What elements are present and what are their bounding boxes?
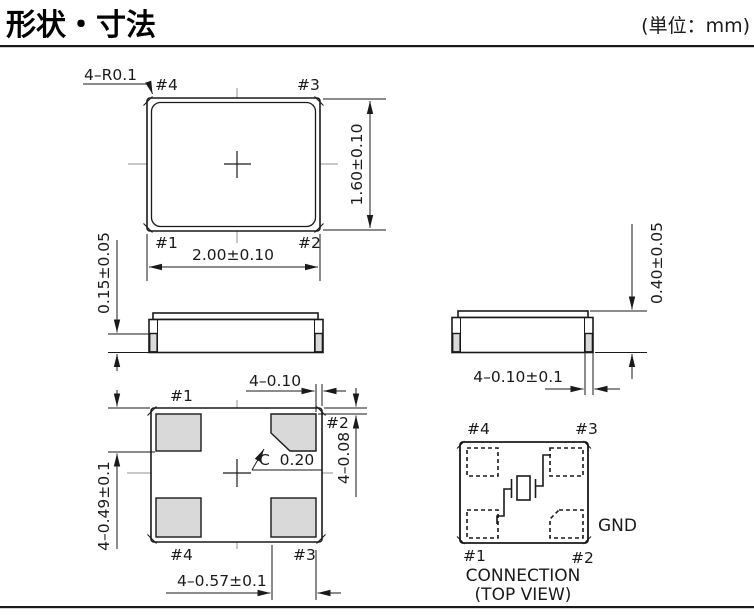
chamfer-label: C 0.20 — [259, 451, 314, 469]
body-height-dimension: 0.40±0.05 — [590, 222, 666, 379]
height-dim-label: 1.60±0.10 — [348, 123, 366, 205]
terminal-width-dimension: 4–0.10±0.1 — [473, 353, 620, 395]
pad-1 — [156, 414, 201, 451]
caption-connection: CONNECTION — [466, 566, 581, 586]
top-view: #4 #3 #1 #2 4–R0.1 1.60±0.10 2.00±0.10 — [83, 66, 386, 281]
terminal-height-label: 0.15±0.05 — [95, 232, 113, 314]
package-outline — [460, 442, 588, 543]
caption-top-view: (TOP VIEW) — [475, 585, 572, 605]
terminal-right — [585, 334, 592, 352]
pin4-label: #4 — [155, 76, 178, 94]
pad-height-dimension: 4–0.49±0.1 — [95, 390, 155, 551]
pin1-label: #1 — [155, 234, 178, 252]
body — [452, 318, 593, 353]
body — [149, 320, 323, 353]
pad-edge-gap-y-dimension: 4–0.08 — [318, 388, 367, 497]
pin3-label: #3 — [575, 420, 598, 438]
chamfer-callout: C 0.20 — [252, 449, 322, 470]
unit-note: (単位：mm) — [641, 15, 750, 37]
pin2-label: #2 — [298, 234, 321, 252]
lid — [458, 311, 588, 318]
corner-radius-callout: 4–R0.1 — [83, 66, 153, 94]
terminal-width-label: 4–0.10±0.1 — [473, 368, 563, 386]
lid — [153, 313, 318, 320]
header: 形状・寸法 (単位：mm) — [0, 8, 754, 47]
pin4-label: #4 — [170, 546, 193, 564]
pin4-label: #4 — [467, 420, 490, 438]
pad-width-label: 4–0.57±0.1 — [177, 572, 267, 590]
corner-radius-label: 4–R0.1 — [84, 66, 137, 84]
pad-edge-gap-y-label: 4–0.08 — [335, 432, 353, 484]
pad-3 — [271, 498, 316, 537]
side-view-end: 0.40±0.05 4–0.10±0.1 — [452, 222, 666, 395]
pin2-label: #2 — [326, 414, 349, 432]
terminal-left — [453, 334, 460, 352]
pin1-label: #1 — [463, 547, 486, 565]
terminal-right — [315, 334, 322, 352]
pin3-label: #3 — [297, 76, 320, 94]
pin1-label: #1 — [170, 387, 193, 405]
body-height-label: 0.40±0.05 — [648, 222, 666, 304]
footer-rule — [0, 606, 754, 608]
pad-4 — [156, 498, 201, 537]
pad-edge-gap-x-label: 4–0.10 — [249, 372, 301, 390]
page-title: 形状・寸法 — [6, 8, 156, 43]
terminal-left — [150, 334, 157, 352]
pad-height-label: 4–0.49±0.1 — [95, 461, 113, 551]
pin3-label: #3 — [293, 546, 316, 564]
pad-edge-gap-x-dimension: 4–0.10 — [246, 372, 346, 412]
datasheet-dimension-page: 形状・寸法 (単位：mm) #4 #3 #1 #2 4–R0.1 — [0, 0, 754, 615]
pin2-label: #2 — [571, 549, 594, 567]
gnd-label: GND — [598, 516, 637, 536]
dimension-drawing: 形状・寸法 (単位：mm) #4 #3 #1 #2 4–R0.1 — [0, 0, 754, 615]
header-rule — [0, 45, 754, 47]
bottom-view: #1 #2 #4 #3 4–0.10 4–0.08 4–0.49±0.1 — [95, 372, 367, 600]
width-dim-label: 2.00±0.10 — [192, 246, 274, 264]
connection-view: #4 #3 #1 #2 GND CONNECTION (TOP VIEW) — [457, 420, 637, 605]
terminal-height-dimension: 0.15±0.05 — [95, 232, 149, 371]
